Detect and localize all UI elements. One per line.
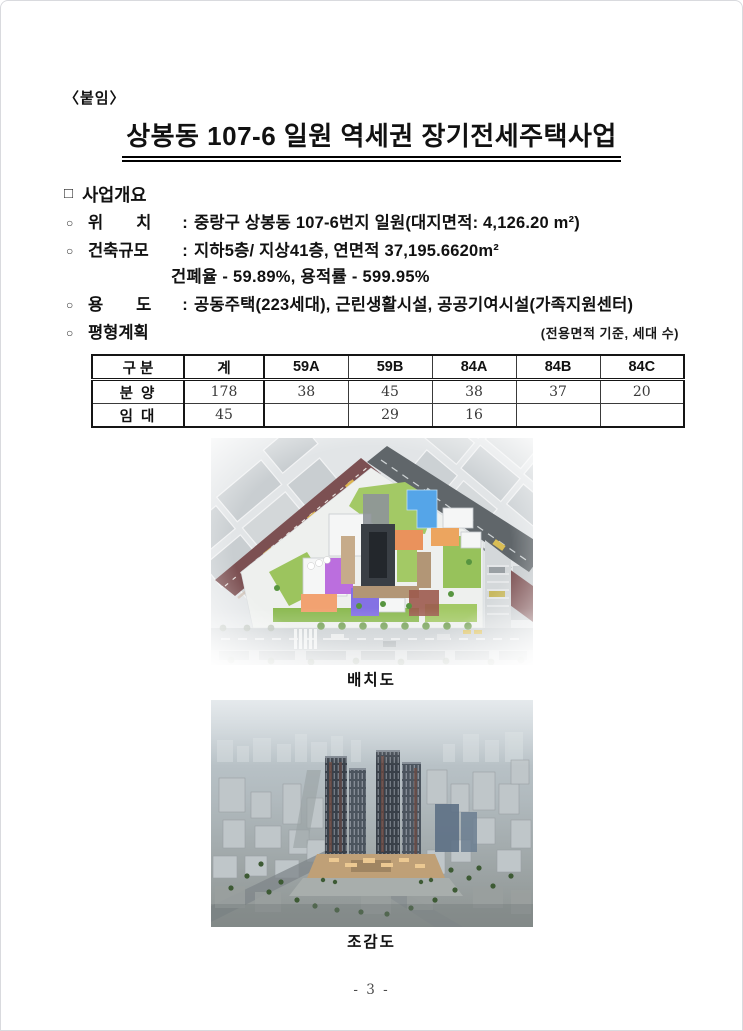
cell-value: 20 [600,380,684,404]
birds-eye-figure: 조감도 [64,700,679,952]
row-label: 분 양 [92,380,184,404]
col-header: 84A [432,355,516,380]
line-label: 용 도 [88,294,176,317]
colon-separator: : [176,240,194,263]
page-number: - 3 - [64,982,679,998]
square-bullet-icon: □ [64,185,73,202]
table-row: 분 양 178 38 45 38 37 20 [92,380,684,404]
cell-value: 45 [184,404,264,428]
overview-line-unitplan: ○ 평형계획 (전용면적 기준, 세대 수) [66,322,679,345]
unit-plan-table: 구 분 계 59A 59B 84A 84B 84C 분 양 178 38 45 … [91,354,685,428]
col-header: 계 [184,355,264,380]
line-label: 위 치 [88,212,176,235]
section-overview: □ 사업개요 [64,182,679,207]
table-row: 임 대 45 29 16 [92,404,684,428]
cell-value: 16 [432,404,516,428]
figure-caption: 배치도 [64,668,679,690]
title-row: 상봉동 107-6 일원 역세권 장기전세주택사업 [64,116,679,162]
row-label: 임 대 [92,404,184,428]
overview-line-scale: ○ 건축규모 : 지하5층/ 지상41층, 연면적 37,195.6620m² [66,240,679,263]
site-plan-figure: 배치도 [64,438,679,690]
cell-value [600,404,684,428]
line-value: 중랑구 상봉동 107-6번지 일원(대지면적: 4,126.20 m²) [194,212,679,235]
cell-value: 29 [348,404,432,428]
colon-separator: : [176,294,194,317]
circle-bullet-icon: ○ [66,212,88,235]
cell-value: 38 [432,380,516,404]
cell-value: 178 [184,380,264,404]
cell-value [516,404,600,428]
overview-line-use: ○ 용 도 : 공동주택(223세대), 근린생활시설, 공공기여시설(가족지원… [66,294,679,317]
cell-value: 38 [264,380,348,404]
colon-separator: : [176,212,194,235]
line-value: 지하5층/ 지상41층, 연면적 37,195.6620m² [194,240,679,263]
line-label: 평형계획 [88,322,149,345]
col-header: 84C [600,355,684,380]
table-header-row: 구 분 계 59A 59B 84A 84B 84C [92,355,684,380]
cell-value: 45 [348,380,432,404]
circle-bullet-icon: ○ [66,294,88,317]
attachment-label: 〈붙임〉 [64,87,679,108]
site-plan-image [211,438,533,665]
circle-bullet-icon: ○ [66,240,88,263]
line-value: 공동주택(223세대), 근린생활시설, 공공기여시설(가족지원센터) [194,294,679,317]
figure-caption: 조감도 [64,930,679,952]
overview-line-coverage: 건폐율 - 59.89%, 용적률 - 599.95% [171,266,679,289]
line-label: 건축규모 [88,240,176,263]
unitplan-note: (전용면적 기준, 세대 수) [541,322,679,345]
section-title: 사업개요 [82,182,146,207]
col-header: 84B [516,355,600,380]
birds-eye-image [211,700,533,927]
overview-line-location: ○ 위 치 : 중랑구 상봉동 107-6번지 일원(대지면적: 4,126.2… [66,212,679,235]
circle-bullet-icon: ○ [66,322,88,345]
col-header: 구 분 [92,355,184,380]
cell-value: 37 [516,380,600,404]
cell-value [264,404,348,428]
document-page: 〈붙임〉 상봉동 107-6 일원 역세권 장기전세주택사업 □ 사업개요 ○ … [1,87,742,998]
col-header: 59B [348,355,432,380]
page-title: 상봉동 107-6 일원 역세권 장기전세주택사업 [122,116,621,162]
col-header: 59A [264,355,348,380]
